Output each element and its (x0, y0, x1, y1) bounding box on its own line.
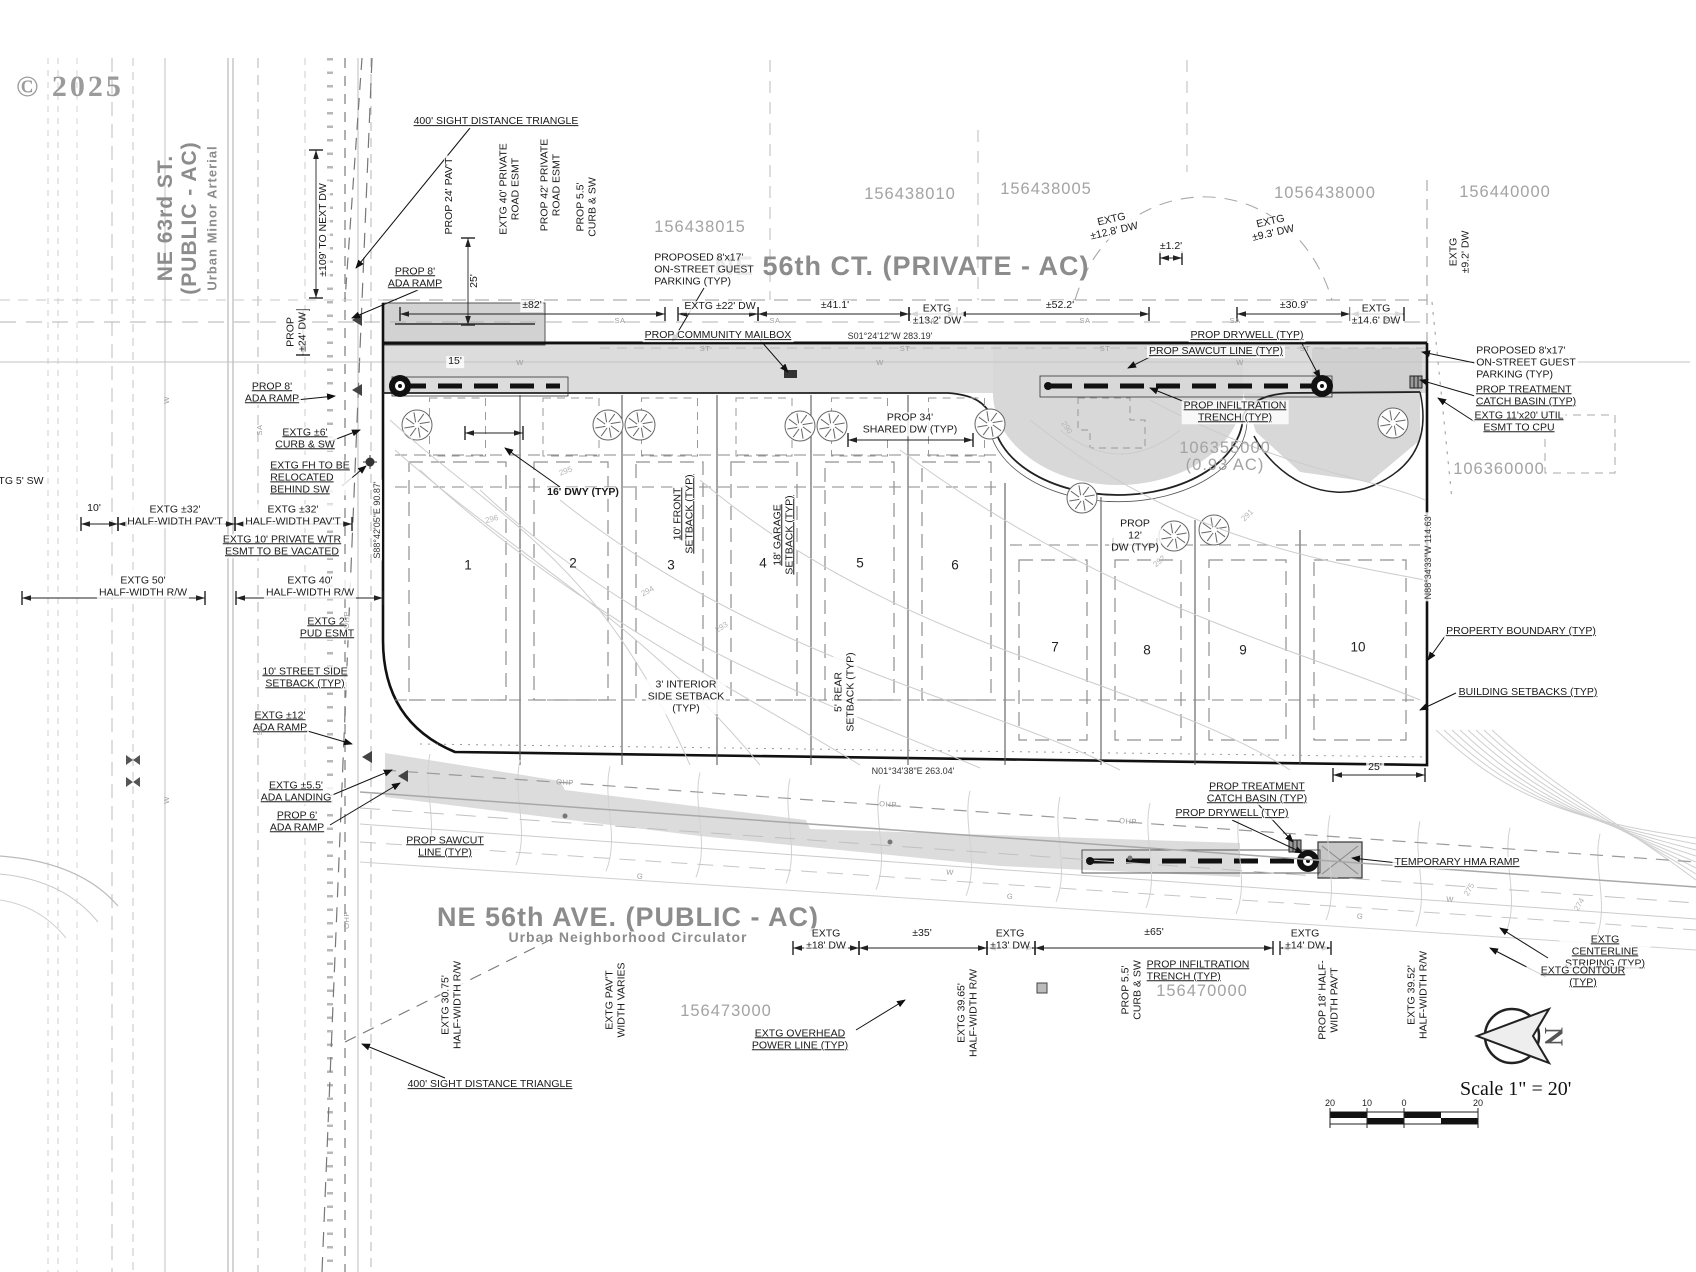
lot-number-label: 6 (951, 557, 959, 572)
annotation-callout: EXTG ±6' CURB & SW (273, 427, 337, 451)
annotation-callout: PROP 42' PRIVATE ROAD ESMT (539, 137, 563, 233)
contour-elevation-label: 291 (1240, 508, 1256, 524)
annotation-callout: EXTG 11'x20' UTIL ESMT TO CPU (1472, 410, 1565, 434)
annotation-callout: PROP 18' HALF- WIDTH PAV'T (1317, 958, 1341, 1041)
annotation-callout: TG 5' SW (0, 476, 46, 488)
scale-bar-tick: 10 (1362, 1098, 1372, 1108)
utility-line-marker: SA (256, 424, 264, 435)
annotation-callout: PROP TREATMENT CATCH BASIN (TYP) (1205, 781, 1309, 805)
street-name-label: Urban Neighborhood Circulator (509, 930, 748, 946)
scale-bar-tick: 20 (1325, 1098, 1335, 1108)
annotation-callout: 10' FRONT SETBACK (TYP) (672, 472, 696, 555)
utility-line-marker: W (516, 359, 524, 367)
parcel-number-label: 156470000 (1156, 982, 1248, 1000)
annotation-callout: 16' DWY (TYP) (545, 487, 621, 499)
annotation-callout: PROP INFILTRATION TRENCH (TYP) (1182, 400, 1289, 424)
site-plan-canvas: © 2025 Scale 1" = 20' N NE 63rd ST.(PUBL… (0, 0, 1696, 1272)
copyright-watermark: © 2025 (16, 70, 124, 104)
annotation-callout: PROP COMMUNITY MAILBOX (643, 330, 794, 342)
dimension-label: EXTG ±9.2' DW (1448, 229, 1472, 276)
scale-bar-tick: 20 (1473, 1098, 1483, 1108)
annotation-callout: PROP 34' SHARED DW (TYP) (861, 412, 960, 436)
utility-line-marker: SA (614, 317, 625, 325)
annotation-callout: EXTG ±5.5' ADA LANDING (259, 780, 334, 804)
dimension-label: 15' (446, 356, 464, 368)
parcel-number-label: (0.93 AC) (1186, 456, 1265, 474)
dimension-label: ±52.2' (1044, 300, 1076, 312)
utility-line-marker: ST (1100, 345, 1111, 353)
annotation-callout: PROPOSED 8'x17' ON-STREET GUEST PARKING … (1474, 345, 1578, 380)
utility-line-marker: OHP (343, 911, 351, 929)
parcel-number-label: 156438015 (654, 218, 746, 236)
annotation-callout: EXTG 30.75' HALF-WIDTH R/W (440, 959, 464, 1051)
annotation-callout: PROP INFILTRATION TRENCH (TYP) (1145, 959, 1252, 983)
lot-number-label: 5 (856, 555, 864, 570)
annotation-callout: PROP 5.5' CURB & SW (575, 175, 599, 239)
parcel-number-label: 156438010 (864, 185, 956, 203)
annotation-callout: PROPOSED 8'x17' ON-STREET GUEST PARKING … (652, 252, 756, 287)
utility-line-marker: OHP (556, 778, 574, 788)
utility-line-marker: ST (1300, 345, 1311, 353)
lot-number-label: 4 (759, 555, 767, 570)
utility-line-marker: OHP (879, 800, 897, 810)
dimension-label: EXTG ±13' DW (988, 928, 1032, 952)
utility-line-marker: G (1357, 913, 1364, 922)
survey-bearing-label: N88°34'33"W 114.63' (1423, 513, 1433, 602)
annotation-callout: BUILDING SETBACKS (TYP) (1457, 687, 1600, 699)
survey-bearing-label: S88°42'05"E 90.87' (372, 479, 382, 560)
annotation-callout: 3' INTERIOR SIDE SETBACK (TYP) (646, 679, 726, 714)
contour-elevation-label: 275 (1463, 882, 1477, 898)
annotation-callout: 400' SIGHT DISTANCE TRIANGLE (406, 1079, 575, 1091)
parcel-number-label: 1056438000 (1274, 184, 1376, 202)
contour-elevation-label: 290 (1059, 420, 1074, 436)
utility-line-marker: SA (256, 724, 264, 735)
street-name-label: NE 63rd ST. (154, 155, 178, 282)
dimension-label: ±35' (910, 928, 933, 940)
annotation-callout: 10' STREET SIDE SETBACK (TYP) (260, 666, 349, 690)
utility-line-marker: SA (924, 317, 935, 325)
annotation-callout: TEMPORARY HMA RAMP (1392, 857, 1521, 869)
survey-bearing-label: S01°24'12"W 283.19' (846, 331, 935, 341)
annotation-callout: PROP DRYWELL (TYP) (1189, 330, 1306, 342)
utility-line-marker: G (1007, 893, 1014, 902)
annotation-callout: PROP 6' ADA RAMP (268, 810, 326, 834)
annotation-callout: ±109' TO NEXT DW (318, 181, 330, 279)
annotation-callout: 5' REAR SETBACK (TYP) (833, 650, 857, 733)
contour-elevation-label: 295 (558, 466, 574, 479)
dimension-label: EXTG ±18' DW (804, 928, 848, 952)
utility-line-marker: OHP (343, 611, 351, 629)
contour-elevation-label: 294 (640, 585, 656, 599)
lot-number-label: 7 (1051, 639, 1059, 654)
annotation-callout: PROP 8' ADA RAMP (386, 266, 444, 290)
contour-elevation-label: 293 (714, 621, 730, 636)
utility-line-marker: ST (700, 345, 711, 353)
dimension-label: ±82' (520, 300, 543, 312)
utility-line-marker: SA (1384, 317, 1395, 325)
site-plan-labels: © 2025 Scale 1" = 20' N NE 63rd ST.(PUBL… (0, 0, 1696, 1272)
street-name-label: (PUBLIC - AC) (178, 141, 202, 294)
utility-line-marker: W (163, 396, 171, 404)
lot-number-label: 3 (667, 557, 675, 572)
utility-line-marker: W (876, 359, 884, 367)
dimension-label: 10' (85, 503, 103, 515)
dimension-label: ±30.9' (1278, 300, 1310, 312)
street-name-label: NE 56th AVE. (PUBLIC - AC) (437, 902, 819, 932)
dimension-label: EXTG ±12.8' DW (1085, 209, 1142, 244)
utility-line-marker: OHP (1119, 817, 1137, 827)
annotation-callout: EXTG 10' PRIVATE WTR ESMT TO BE VACATED (221, 534, 343, 558)
street-name-label: NE 56th CT. (PRIVATE - AC) (714, 251, 1089, 281)
lot-number-label: 8 (1143, 642, 1151, 657)
parcel-number-label: 156473000 (680, 1002, 772, 1020)
annotation-callout: EXTG ±32' HALF-WIDTH PAV'T (125, 504, 225, 528)
lot-number-label: 9 (1239, 642, 1247, 657)
annotation-callout: PROP 12' DW (TYP) (1109, 518, 1161, 553)
utility-line-marker: W (1236, 359, 1244, 367)
annotation-callout: PROP SAWCUT LINE (TYP) (404, 835, 486, 859)
parcel-number-label: 106355000 (1179, 439, 1271, 457)
annotation-callout: EXTG 39.65' HALF-WIDTH R/W (956, 967, 980, 1059)
dimension-label: EXTG ±13.2' DW (911, 303, 964, 327)
survey-bearing-label: N01°34'38"E 263.04' (870, 766, 957, 776)
parcel-number-label: 106360000 (1453, 460, 1545, 478)
annotation-callout: PROP 24' PAV'T (444, 156, 456, 237)
annotation-callout: PROP TREATMENT CATCH BASIN (TYP) (1474, 384, 1578, 408)
annotation-callout: EXTG 39.52' HALF-WIDTH R/W (1406, 949, 1430, 1041)
utility-line-marker: ST (900, 345, 911, 353)
street-name-label: Urban Minor Arterial (206, 145, 221, 290)
annotation-callout: PROP 5.5' CURB & SW (1120, 958, 1144, 1022)
annotation-callout: PROPERTY BOUNDARY (TYP) (1444, 626, 1598, 638)
annotation-callout: EXTG FH TO BE RELOCATED BEHIND SW (268, 460, 352, 495)
annotation-callout: 400' SIGHT DISTANCE TRIANGLE (412, 116, 581, 128)
utility-line-marker: SA (1229, 317, 1240, 325)
dimension-label: ±1.2' (1158, 241, 1184, 253)
annotation-callout: PROP 8' ADA RAMP (243, 381, 301, 405)
dimension-label: ±41.1' (819, 300, 851, 312)
parcel-number-label: 156438005 (1000, 180, 1092, 198)
utility-line-marker: G (637, 873, 644, 882)
annotation-callout: EXTG 40' HALF-WIDTH R/W (264, 575, 356, 599)
annotation-callout: EXTG OVERHEAD POWER LINE (TYP) (750, 1028, 850, 1052)
utility-line-marker: W (163, 796, 171, 804)
scale-bar-tick: 0 (1401, 1098, 1406, 1108)
dimension-label: EXTG ±22' DW (682, 301, 757, 313)
annotation-callout: PROP ±24' DW (285, 310, 309, 354)
annotation-callout: 18' GARAGE SETBACK (TYP) (772, 493, 796, 576)
annotation-callout: EXTG 40' PRIVATE ROAD ESMT (498, 141, 522, 236)
north-arrow-letter: N (1539, 1027, 1568, 1046)
annotation-callout: EXTG ±32' HALF-WIDTH PAV'T (243, 504, 343, 528)
lot-number-label: 10 (1350, 639, 1365, 654)
annotation-callout: EXTG CONTOUR (TYP) (1527, 965, 1640, 989)
dimension-label: ±65' (1142, 927, 1165, 939)
contour-elevation-label: 274 (1573, 897, 1587, 913)
utility-line-marker: SA (769, 317, 780, 325)
parcel-number-label: 156440000 (1459, 183, 1551, 201)
lot-number-label: 1 (464, 557, 472, 572)
dimension-label: 25' (469, 272, 481, 290)
utility-line-marker: SA (1079, 317, 1090, 325)
utility-line-marker: W (946, 869, 954, 878)
annotation-callout: EXTG PAV'T WIDTH VARIES (604, 960, 628, 1039)
lot-number-label: 2 (569, 555, 577, 570)
contour-elevation-label: 292 (1152, 554, 1168, 569)
utility-line-marker: W (1446, 896, 1454, 905)
dimension-label: 25' (1366, 762, 1384, 774)
dimension-label: EXTG ±14' DW (1283, 928, 1327, 952)
dimension-label: EXTG ±9.3' DW (1247, 211, 1298, 244)
annotation-callout: PROP DRYWELL (TYP) (1174, 808, 1291, 820)
annotation-callout: EXTG 50' HALF-WIDTH R/W (97, 575, 189, 599)
contour-elevation-label: 296 (484, 514, 499, 526)
annotation-callout: PROP SAWCUT LINE (TYP) (1147, 346, 1285, 358)
